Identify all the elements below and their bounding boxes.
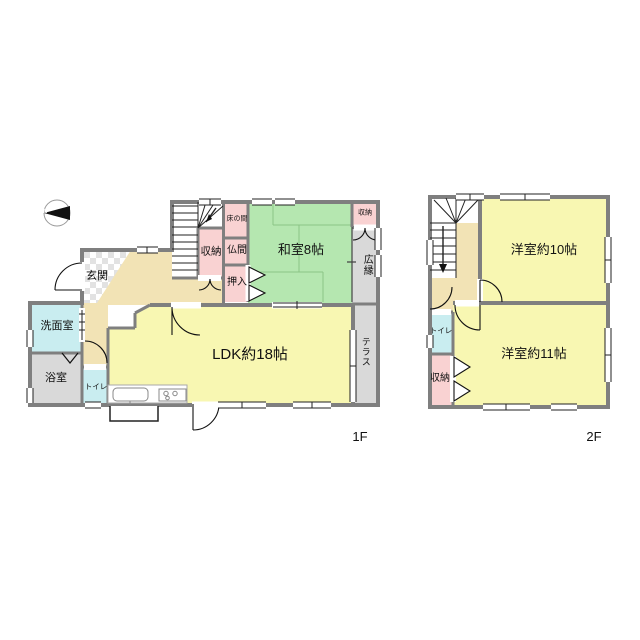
label-washitsu: 和室8帖: [278, 243, 324, 257]
kitchen-sink: [113, 388, 148, 401]
label-floor1: 1F: [352, 430, 367, 444]
label-butsuma: 仏間: [227, 246, 247, 257]
floor-plan-page: N 玄関 洗面室 浴室 トイレ 収納 床の間 仏間 押入 和室8帖 収納 広縁 …: [0, 0, 640, 640]
label-toire-1f: トイレ: [85, 383, 108, 391]
porch-step: [110, 406, 158, 421]
label-oshiire: 押入: [227, 278, 247, 289]
floor-plan-svg: [0, 0, 640, 640]
kitchen-counter: [108, 385, 187, 405]
floor1-plan: [27, 199, 381, 430]
compass-north-label: N: [43, 209, 47, 215]
label-terrace: テラス: [360, 337, 369, 367]
label-hiroen: 広縁: [361, 254, 372, 276]
compass-icon: [44, 200, 70, 226]
label-yokushitsu: 浴室: [45, 373, 67, 385]
label-ldk: LDK約18帖: [212, 347, 288, 363]
label-senmenshitsu: 洗面室: [41, 321, 74, 333]
label-floor2: 2F: [586, 430, 601, 444]
floor2-plan: [427, 194, 611, 410]
label-shuno-hiroen: 収納: [358, 209, 372, 216]
label-yoshitsu11: 洋室約11帖: [501, 347, 567, 361]
label-tokonoma: 床の間: [227, 215, 248, 222]
label-shuno-2f: 収納: [430, 374, 450, 385]
kitchen-stove: [159, 389, 186, 401]
label-shuno-kaidan: 収納: [201, 246, 222, 257]
label-yoshitsu10: 洋室約10帖: [511, 243, 577, 257]
label-genkan: 玄関: [86, 271, 108, 283]
north-arrow-icon: [44, 206, 70, 220]
label-toire-2f: トイレ: [430, 327, 453, 335]
